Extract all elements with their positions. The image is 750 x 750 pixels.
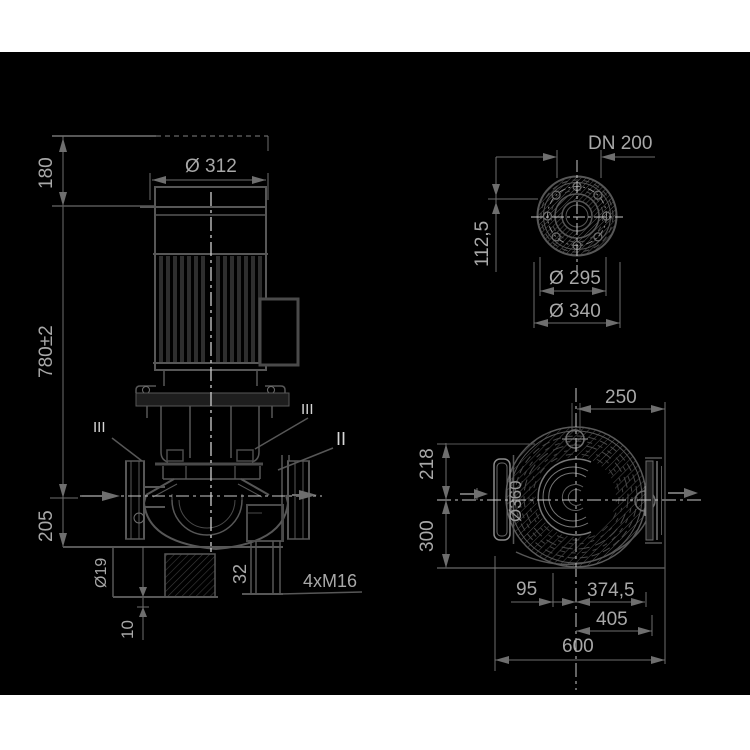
svg-text:III: III <box>301 401 314 418</box>
svg-text:DN 200: DN 200 <box>588 133 652 154</box>
svg-text:II: II <box>336 429 346 449</box>
svg-text:Ø 295: Ø 295 <box>549 268 601 289</box>
svg-text:405: 405 <box>596 609 628 630</box>
svg-text:112,5: 112,5 <box>472 221 493 267</box>
svg-text:218: 218 <box>417 448 438 480</box>
svg-text:205: 205 <box>36 510 57 542</box>
svg-text:4xM16: 4xM16 <box>303 571 357 591</box>
svg-text:600: 600 <box>562 636 594 657</box>
svg-text:300: 300 <box>417 520 438 552</box>
svg-text:10: 10 <box>118 620 137 639</box>
svg-text:III: III <box>93 419 106 436</box>
svg-text:95: 95 <box>516 579 537 600</box>
svg-text:32: 32 <box>230 564 250 584</box>
svg-text:250: 250 <box>605 387 637 408</box>
svg-text:Ø 312: Ø 312 <box>185 156 237 177</box>
svg-text:Ø360: Ø360 <box>506 480 525 522</box>
svg-text:180: 180 <box>36 157 57 189</box>
svg-text:374,5: 374,5 <box>587 580 635 601</box>
svg-text:Ø 340: Ø 340 <box>549 301 601 322</box>
svg-text:780±2: 780±2 <box>36 325 57 378</box>
svg-text:Ø19: Ø19 <box>93 558 110 588</box>
